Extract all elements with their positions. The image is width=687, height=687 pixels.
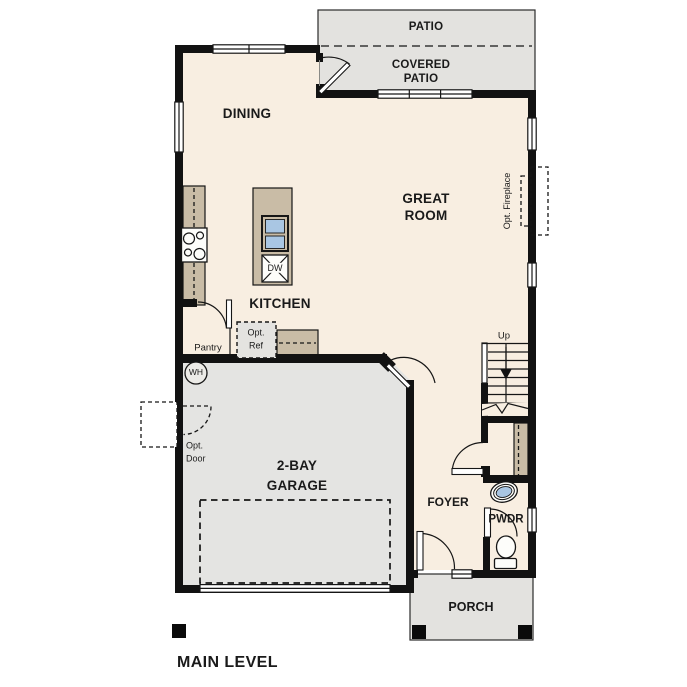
- window: [175, 102, 183, 152]
- feature-label-pantry: Pantry: [194, 344, 221, 355]
- feature-label-opt-ref: Opt. Ref: [247, 327, 264, 352]
- plan-title: MAIN LEVEL: [177, 654, 278, 672]
- window: [528, 508, 536, 532]
- window: [528, 118, 536, 150]
- room-label-foyer: FOYER: [427, 496, 468, 510]
- room-label-garage: 2-BAY GARAGE: [267, 456, 327, 496]
- garage-door: [200, 585, 390, 593]
- feature-label-water-heater: WH: [189, 368, 203, 378]
- room-label-powder: PWDR: [488, 513, 523, 526]
- floor-plan-drawing: [0, 0, 687, 687]
- floor-plan-page: PATIO COVERED PATIO DINING GREAT ROOM KI…: [0, 0, 687, 687]
- cooktop-icon: [182, 228, 208, 262]
- room-label-patio: PATIO: [409, 20, 443, 34]
- room-label-dining: DINING: [223, 106, 271, 122]
- room-label-covered-patio: COVERED PATIO: [392, 58, 450, 86]
- window: [528, 263, 536, 287]
- feature-label-opt-fireplace: Opt. Fireplace: [502, 173, 512, 230]
- room-label-porch: PORCH: [448, 600, 493, 614]
- room-label-great-room: GREAT ROOM: [402, 190, 449, 224]
- toilet-icon: [495, 536, 517, 569]
- window: [378, 90, 472, 98]
- window: [213, 45, 285, 53]
- room-label-kitchen: KITCHEN: [249, 296, 310, 312]
- window: [452, 570, 472, 578]
- feature-label-opt-door: Opt. Door: [186, 440, 206, 465]
- feature-label-dishwasher: DW: [267, 263, 284, 273]
- feature-label-stairs-up: Up: [498, 332, 510, 343]
- understair-cabinet: [514, 423, 528, 477]
